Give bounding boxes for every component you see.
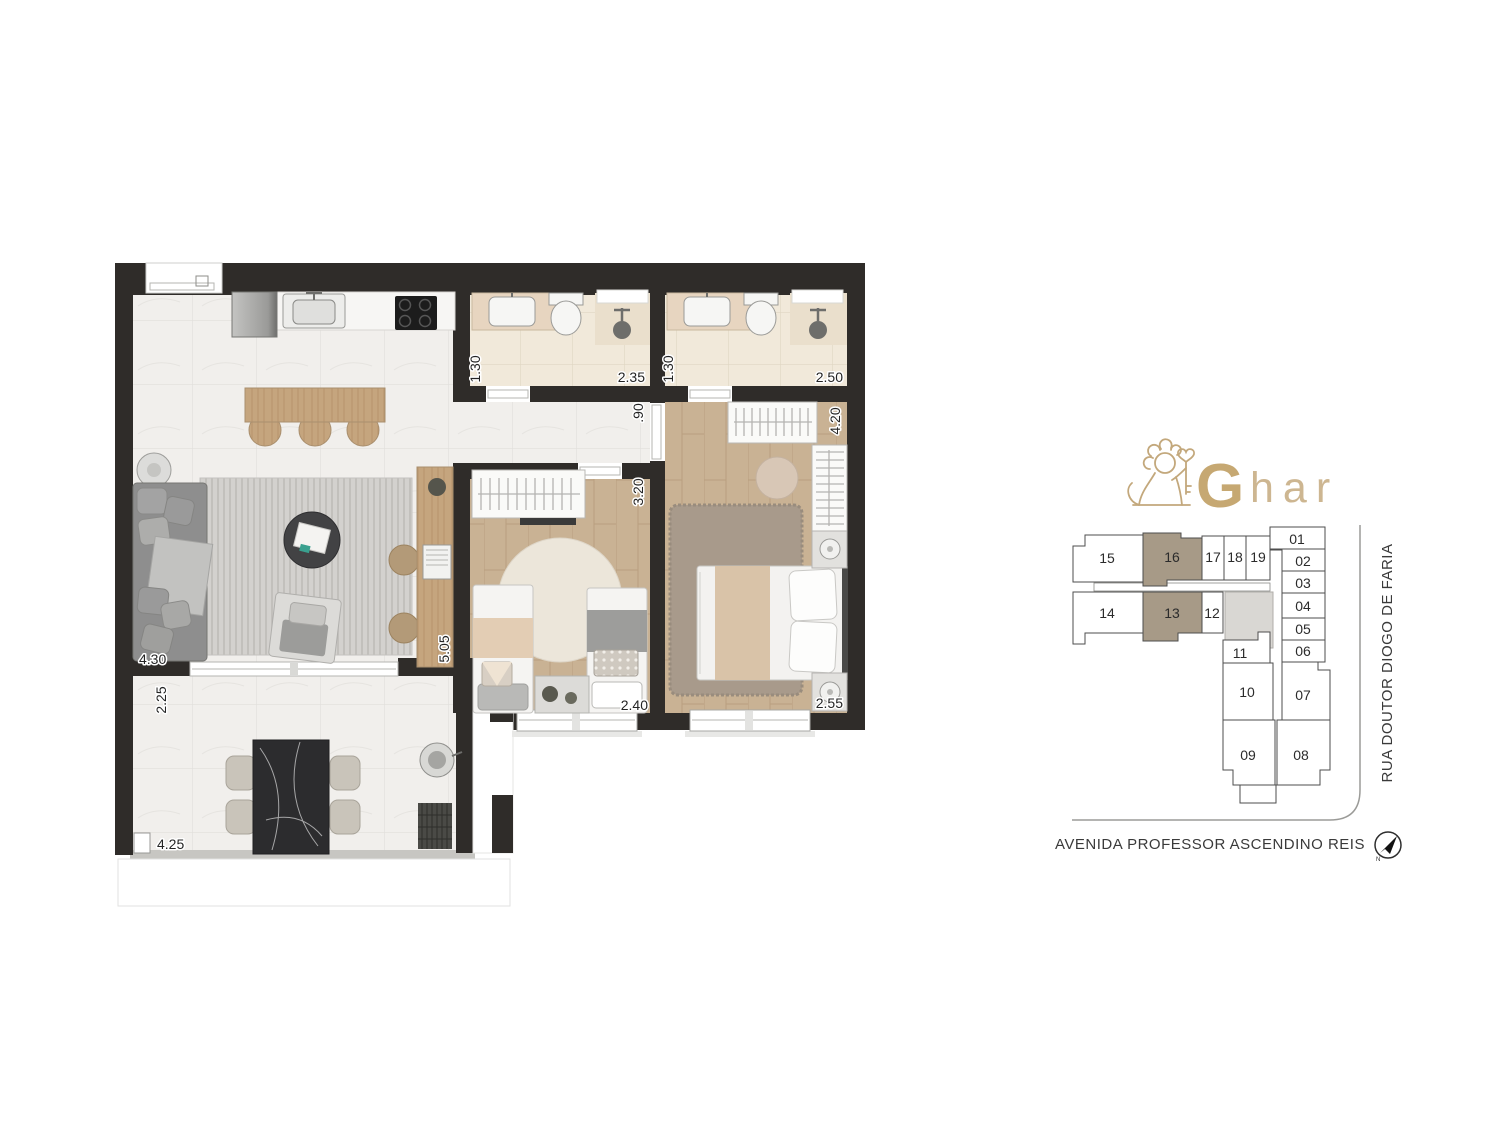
floorplan-page: 1.30 2.35 1.30 2.50 .90 3.20 4.20 4.30 5…: [0, 0, 1500, 1145]
logo-text-har: har: [1250, 464, 1339, 512]
bathroom1-door: [486, 386, 530, 402]
terrace-apron: [118, 859, 510, 906]
terrace-sliding-door: [190, 662, 398, 676]
wall-niche: [134, 833, 150, 853]
chair: [226, 756, 256, 790]
unit-label-19: 19: [1250, 549, 1266, 565]
nightstand: [535, 676, 589, 713]
sink: [684, 297, 730, 326]
floorplan-canvas: 1.30 2.35 1.30 2.50 .90 3.20 4.20 4.30 5…: [0, 0, 1500, 1145]
shower: [790, 290, 847, 345]
keyplan-corridor: [1094, 583, 1270, 591]
brand-logo: G har: [1128, 439, 1339, 521]
bedroom2-window: [512, 710, 642, 737]
unit-label-06: 06: [1295, 643, 1311, 659]
dim-bath1-width: 1.30: [467, 355, 483, 382]
dim-living-length: 5.05: [436, 635, 452, 662]
unit-label-01: 01: [1289, 531, 1305, 547]
dim-bedroom1-length: 4.20: [827, 407, 843, 434]
key-plan: 01 02 03 04 05 06 07 08 09 10 11 12 13 1…: [1055, 525, 1401, 863]
tv: [520, 518, 576, 525]
bedroom1-door: [650, 403, 665, 461]
unit-label-08: 08: [1293, 747, 1309, 763]
lion-key-icon: [1128, 439, 1194, 505]
shower: [595, 290, 650, 345]
cooktop: [395, 296, 437, 330]
chair: [330, 756, 360, 790]
dim-terrace-depth: 2.25: [153, 686, 169, 713]
sofa: [133, 483, 213, 661]
desk-plant: [428, 478, 446, 496]
unit-label-02: 02: [1295, 553, 1311, 569]
armchair: [268, 592, 341, 664]
floor-plan: 1.30 2.35 1.30 2.50 .90 3.20 4.20 4.30 5…: [115, 263, 865, 906]
toilet: [744, 293, 778, 335]
dim-bath2-length: 2.50: [816, 369, 843, 385]
wardrobe: [472, 470, 585, 518]
dim-bath1-length: 2.35: [618, 369, 645, 385]
dim-bedroom2-width: 2.40: [621, 697, 648, 713]
unit-label-04: 04: [1295, 598, 1311, 614]
dim-terrace-width: 4.25: [157, 836, 184, 852]
unit-label-09: 09: [1240, 747, 1256, 763]
street-label: RUA DOUTOR DIOGO DE FARIA: [1379, 544, 1396, 783]
sink: [489, 297, 535, 326]
compass-north-label: N: [1376, 857, 1380, 863]
chair: [226, 800, 256, 834]
unit-stair-tab: [1240, 785, 1276, 803]
wardrobe-side: [812, 445, 847, 531]
dim-bedroom1-width: 2.55: [816, 695, 843, 711]
double-bed: [697, 566, 848, 680]
toilet: [549, 293, 583, 335]
unit-label-03: 03: [1295, 575, 1311, 591]
dim-bedroom2-length: 3.20: [630, 478, 646, 505]
unit-label-11: 11: [1233, 645, 1248, 661]
unit-label-16: 16: [1164, 549, 1180, 565]
unit-label-05: 05: [1295, 621, 1311, 637]
twin-bed-left: [473, 585, 533, 713]
chair: [330, 800, 360, 834]
fridge: [232, 292, 277, 337]
unit-label-18: 18: [1227, 549, 1243, 565]
twin-bed-right: [587, 588, 647, 713]
dim-living-width: 4.30: [139, 651, 166, 667]
bedroom1-window: [685, 710, 815, 737]
dining-table: [253, 740, 329, 854]
kitchen-sink: [283, 292, 345, 328]
floor-grate: [418, 803, 452, 849]
logo-letter-g: G: [1196, 452, 1244, 521]
desk-stool: [389, 613, 419, 643]
unit-label-07: 07: [1295, 687, 1311, 703]
avenue-label: AVENIDA PROFESSOR ASCENDINO REIS: [1055, 836, 1365, 853]
bathroom2-door: [688, 386, 732, 402]
unit-label-17: 17: [1205, 549, 1221, 565]
wardrobe-top: [728, 402, 817, 443]
pouf: [756, 457, 798, 499]
breakfast-bar: [245, 388, 385, 446]
dim-hall-width: .90: [630, 403, 646, 423]
unit-label-13: 13: [1164, 605, 1180, 621]
living-room: [133, 453, 453, 667]
unit-label-15: 15: [1099, 550, 1115, 566]
unit-label-10: 10: [1239, 684, 1255, 700]
dim-bath2-width: 1.30: [660, 355, 676, 382]
desk-stool: [389, 545, 419, 575]
laptop: [423, 545, 451, 579]
unit-label-12: 12: [1204, 605, 1220, 621]
nightstand-top: [812, 531, 847, 568]
entrance-door: [146, 263, 222, 293]
floor-lamp-inner: [147, 463, 161, 477]
coffee-table: [284, 512, 340, 568]
compass: N: [1375, 832, 1401, 863]
unit-label-14: 14: [1099, 605, 1115, 621]
